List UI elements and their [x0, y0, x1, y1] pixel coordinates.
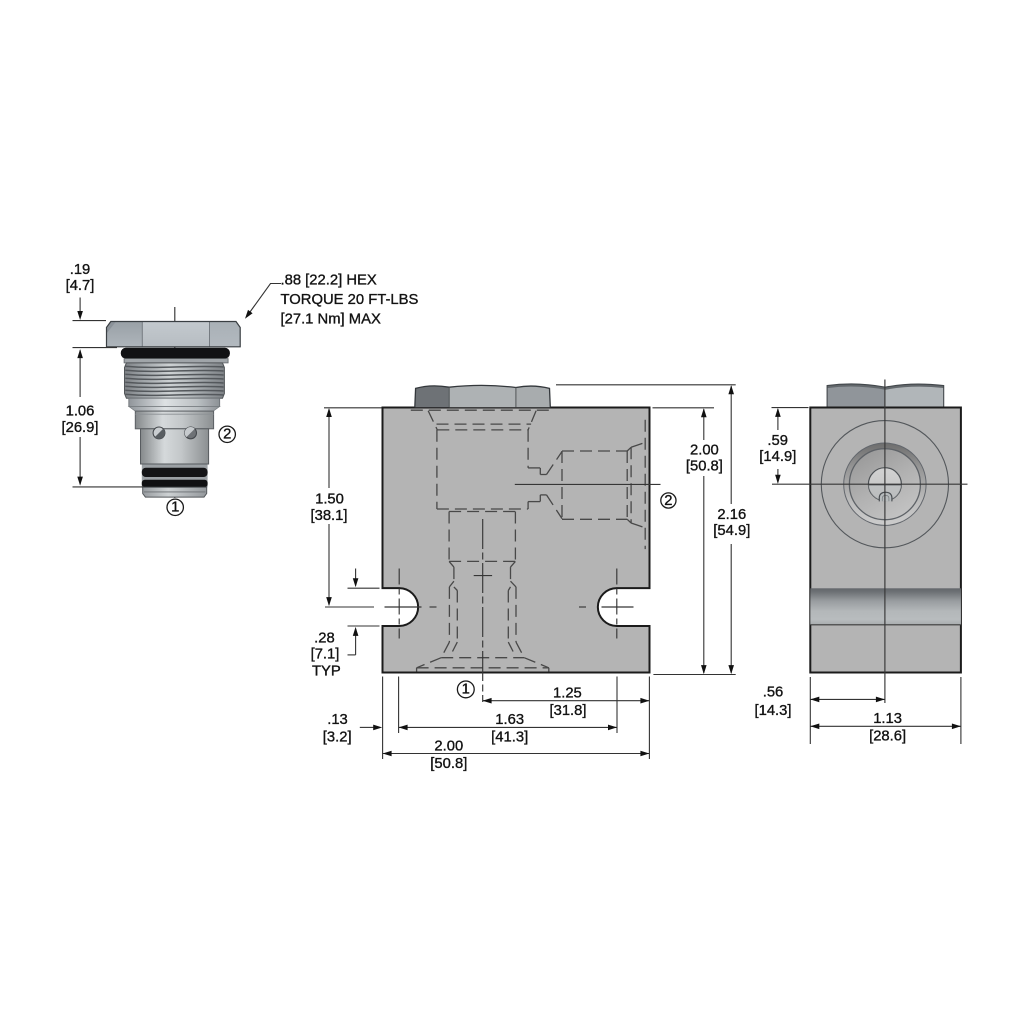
svg-text:1: 1	[171, 500, 179, 516]
svg-text:TYP: TYP	[312, 663, 341, 679]
svg-text:.56: .56	[763, 684, 784, 700]
svg-text:1.50: 1.50	[315, 491, 344, 507]
svg-text:[28.6]: [28.6]	[869, 729, 906, 745]
svg-text:.59: .59	[767, 433, 788, 449]
svg-text:2: 2	[223, 427, 231, 443]
svg-text:2: 2	[664, 493, 672, 509]
svg-text:1.25: 1.25	[553, 686, 582, 702]
svg-text:[26.9]: [26.9]	[61, 420, 98, 436]
svg-text:.19: .19	[70, 262, 91, 278]
svg-text:[50.8]: [50.8]	[430, 756, 467, 772]
svg-text:[4.7]: [4.7]	[66, 278, 95, 294]
svg-text:.88 [22.2] HEX: .88 [22.2] HEX	[281, 272, 377, 288]
svg-text:[14.9]: [14.9]	[759, 449, 796, 465]
svg-text:1: 1	[462, 682, 470, 698]
svg-text:[54.9]: [54.9]	[713, 523, 750, 539]
svg-text:[38.1]: [38.1]	[310, 508, 347, 524]
svg-text:[14.3]: [14.3]	[754, 703, 791, 719]
svg-text:[3.2]: [3.2]	[323, 730, 352, 746]
svg-text:[27.1 Nm] MAX: [27.1 Nm] MAX	[281, 311, 381, 327]
svg-text:2.00: 2.00	[434, 738, 463, 754]
svg-text:1.06: 1.06	[66, 404, 95, 420]
svg-text:2.00: 2.00	[690, 443, 719, 459]
svg-text:[31.8]: [31.8]	[549, 703, 586, 719]
svg-text:TORQUE 20 FT-LBS: TORQUE 20 FT-LBS	[281, 292, 419, 308]
svg-text:1.13: 1.13	[873, 711, 902, 727]
svg-text:.28: .28	[314, 631, 335, 647]
svg-text:2.16: 2.16	[717, 507, 746, 523]
svg-text:.13: .13	[327, 712, 348, 728]
svg-text:[7.1]: [7.1]	[311, 646, 340, 662]
svg-text:[50.8]: [50.8]	[686, 459, 723, 475]
svg-text:1.63: 1.63	[495, 712, 524, 728]
svg-text:[41.3]: [41.3]	[491, 730, 528, 746]
